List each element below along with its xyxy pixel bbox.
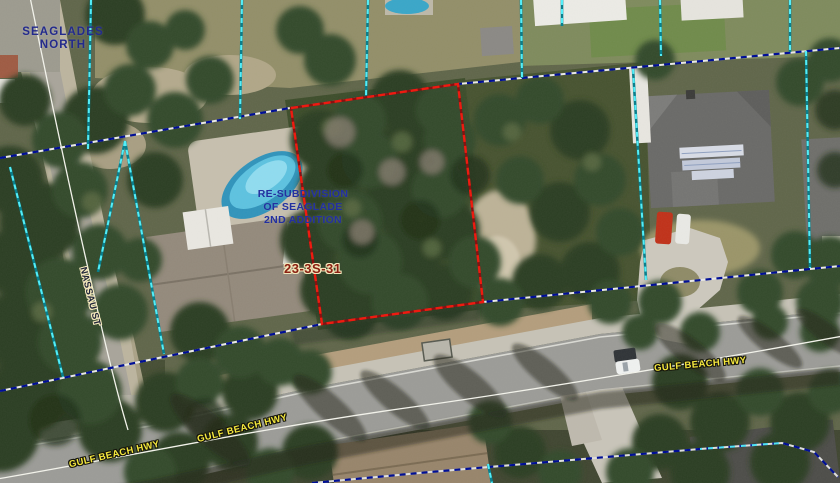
aerial-photo-canvas <box>0 0 840 483</box>
aerial-parcel-map[interactable]: SEAGLADES NORTH RE-SUBDIVISION OF SEAGLA… <box>0 0 840 483</box>
photo-grain <box>0 0 840 483</box>
